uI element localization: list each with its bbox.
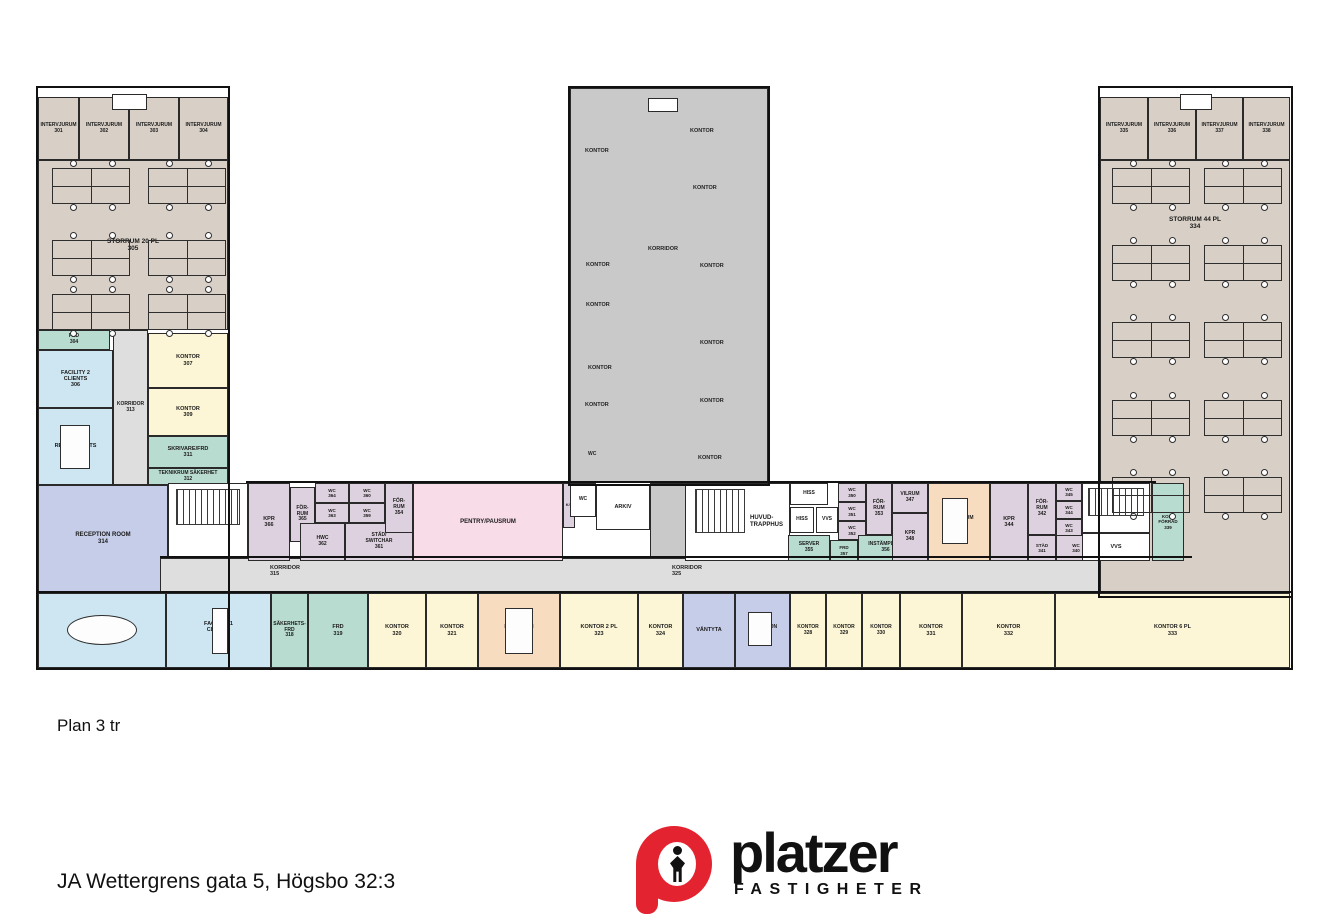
label-tower-kontor-5: KONTOR	[586, 302, 610, 308]
chair-icon	[1261, 358, 1268, 365]
room-sakerhets-frd-318-label: SÄKERHETS- FRD 318	[273, 622, 306, 639]
label-tower-kontor-4: KONTOR	[586, 262, 610, 268]
platzer-logo: platzer FASTIGHETER	[630, 826, 929, 914]
room-intervjurum-301-label: INTERVJURUM 301	[40, 123, 76, 135]
room-wc-344-label: WC 344	[1065, 505, 1073, 515]
room-intervjurum-304-label: INTERVJURUM 304	[185, 123, 221, 135]
chair-icon	[1130, 204, 1137, 211]
room-vvs-mid: VVS	[816, 507, 838, 533]
label-tower-kontor-11: KONTOR	[698, 455, 722, 461]
chair-icon	[1261, 281, 1268, 288]
room-wc-360: WC 360	[349, 483, 385, 503]
chair-icon	[109, 276, 116, 283]
room-korridor-313: KORRIDOR 313	[113, 330, 148, 485]
room-kontor-307-label: KONTOR 307	[176, 354, 200, 367]
room-wc-350-label: WC 350	[848, 487, 856, 497]
chair-icon	[1169, 204, 1176, 211]
chair-icon	[1169, 160, 1176, 167]
chair-icon	[109, 232, 116, 239]
chair-icon	[1261, 204, 1268, 211]
room-wc-343-label: WC 343	[1065, 523, 1073, 533]
label-tower-kontor-10: KONTOR	[700, 398, 724, 404]
room-kontor-6pl-333: KONTOR 6 PL 333	[1055, 593, 1290, 668]
room-for-rum-342-label: FÖR- RUM 342	[1036, 500, 1048, 517]
meeting-table	[212, 608, 228, 654]
chair-icon	[1261, 237, 1268, 244]
room-frd-357-label: FRD 357	[839, 545, 848, 555]
label-tower-korridor: KORRIDOR	[648, 246, 678, 252]
room-frd-357: FRD 357	[830, 540, 858, 561]
chair-icon	[205, 160, 212, 167]
chair-icon	[70, 160, 77, 167]
chair-icon	[1222, 469, 1229, 476]
room-stad-341: STÄD 341	[1028, 535, 1056, 561]
room-arkiv-label: ARKIV	[614, 504, 631, 510]
room-kpr-366: KPR 366	[248, 483, 290, 561]
room-wc-tower: WC	[570, 483, 596, 517]
desk-cluster	[1204, 168, 1282, 204]
room-kontor-6pl-333-label: KONTOR 6 PL 333	[1154, 624, 1191, 637]
desk-cluster	[1112, 322, 1190, 358]
chair-icon	[166, 160, 173, 167]
chair-icon	[1130, 436, 1137, 443]
room-kontor-330: KONTOR 330	[862, 593, 900, 668]
logo-person-head-icon	[673, 846, 682, 855]
room-kontor-330-label: KONTOR 330	[870, 625, 892, 637]
room-tower-hatched-wedge	[650, 483, 688, 559]
room-for-rum-353-label: FÖR- RUM 353	[873, 500, 885, 517]
desk-cluster	[148, 294, 226, 330]
room-wc-352-label: WC 352	[848, 525, 856, 535]
desk-cluster	[52, 240, 130, 276]
chair-icon	[1169, 314, 1176, 321]
room-facility-2-clients-306: FACILITY 2 CLIENTS 306	[38, 350, 113, 408]
desk-cluster	[1112, 168, 1190, 204]
room-wc-351-label: WC 351	[848, 506, 856, 516]
room-wc-tower-label: WC	[579, 497, 587, 503]
room-kontor-2pl-323: KONTOR 2 PL 323	[560, 593, 638, 668]
chair-icon	[205, 330, 212, 337]
room-sakerhets-frd-318: SÄKERHETS- FRD 318	[271, 593, 308, 668]
plan-level-label: Plan 3 tr	[57, 716, 120, 736]
logo-p-descender	[636, 864, 658, 914]
chair-icon	[1169, 392, 1176, 399]
room-intervjurum-335: INTERVJURUM 335	[1100, 97, 1148, 160]
room-for-rum-353: FÖR- RUM 353	[866, 483, 892, 535]
desk-cluster	[1204, 400, 1282, 436]
logo-wordmark: platzer FASTIGHETER	[730, 826, 929, 899]
room-kontor-320: KONTOR 320	[368, 593, 426, 668]
chair-icon	[1130, 237, 1137, 244]
chair-icon	[1222, 513, 1229, 520]
room-hiss-2-label: HISS	[796, 517, 808, 523]
chair-icon	[205, 204, 212, 211]
room-kpr-344-label: KPR 344	[1003, 516, 1015, 529]
label-tower-kontor-1: KONTOR	[585, 148, 609, 154]
chair-icon	[1261, 314, 1268, 321]
desk-cluster	[1204, 477, 1282, 513]
room-intervjurum-336-label: INTERVJURUM 336	[1154, 123, 1190, 135]
chair-icon	[109, 160, 116, 167]
chair-icon	[70, 232, 77, 239]
room-frd-319: FRD 319	[308, 593, 368, 668]
chair-icon	[205, 286, 212, 293]
chair-icon	[70, 330, 77, 337]
room-hwc-362-label: HWC 362	[317, 536, 329, 548]
chair-icon	[109, 204, 116, 211]
room-hiss-1: HISS	[790, 483, 828, 505]
room-for-rum-354-label: FÖR- RUM 354	[393, 499, 405, 516]
room-stad-341-label: STÄD 341	[1036, 543, 1048, 553]
room-wc-363-label: WC 363	[328, 508, 336, 518]
room-kontor-331-label: KONTOR 331	[919, 624, 943, 637]
chair-icon	[1169, 436, 1176, 443]
desk-cluster	[1204, 322, 1282, 358]
chair-icon	[1169, 469, 1176, 476]
room-storrum-334-label: STORRUM 44 PL 334	[1169, 216, 1221, 231]
chair-icon	[109, 286, 116, 293]
room-vilrum-347-label: VILRUM 347	[900, 492, 919, 504]
chair-icon	[1130, 281, 1137, 288]
room-kontor-321: KONTOR 321	[426, 593, 478, 668]
room-intervjurum-303-label: INTERVJURUM 303	[136, 123, 172, 135]
chair-icon	[109, 330, 116, 337]
room-kpr-366-label: KPR 366	[263, 516, 275, 529]
room-intervjurum-301: INTERVJURUM 301	[38, 97, 79, 160]
room-kontor-2pl-323-label: KONTOR 2 PL 323	[581, 624, 618, 637]
room-kpr-348: KPR 348	[892, 513, 928, 561]
room-for-rum-365-label: FÖR- RUM 365	[296, 506, 308, 523]
chair-icon	[1130, 160, 1137, 167]
meeting-table	[505, 608, 533, 654]
room-intervjurum-337-label: INTERVJURUM 337	[1201, 123, 1237, 135]
room-wc-350: WC 350	[838, 483, 866, 502]
room-kontor-324-label: KONTOR 324	[649, 624, 673, 637]
room-vvs-mid-label: VVS	[822, 517, 832, 523]
room-wc-359-label: WC 359	[363, 508, 371, 518]
room-reception-room-314: RECEPTION ROOM 314	[38, 485, 168, 593]
chair-icon	[1261, 436, 1268, 443]
room-kontor-309: KONTOR 309	[148, 388, 228, 436]
room-pentry-pausrum-label: PENTRY/PAUSRUM	[460, 519, 516, 526]
room-vantyta: VÄNTYTA	[683, 593, 735, 668]
chair-icon	[1130, 392, 1137, 399]
room-intervjurum-338-label: INTERVJURUM 338	[1248, 123, 1284, 135]
room-for-rum-354: FÖR- RUM 354	[385, 483, 413, 533]
room-vvs-east: VVS	[1082, 533, 1150, 561]
room-kpr-344: KPR 344	[990, 483, 1028, 561]
room-wc-364-label: WC 364	[328, 488, 336, 498]
room-server-355: SERVER 355	[788, 535, 830, 561]
desk-cluster	[1204, 245, 1282, 281]
room-wc-345: WC 345	[1056, 483, 1082, 501]
label-tower-kontor-8: KONTOR	[585, 402, 609, 408]
stairs-icon	[695, 489, 745, 533]
room-kontor-324: KONTOR 324	[638, 593, 683, 668]
chair-icon	[166, 330, 173, 337]
chair-icon	[70, 276, 77, 283]
room-wc-359: WC 359	[349, 503, 385, 523]
room-wc-345-label: WC 345	[1065, 487, 1073, 497]
chair-icon	[1261, 513, 1268, 520]
chair-icon	[1261, 392, 1268, 399]
label-korridor-325: KORRIDOR 325	[672, 565, 702, 578]
room-intervjurum-304: INTERVJURUM 304	[179, 97, 228, 160]
room-vilrum-347: VILRUM 347	[892, 483, 928, 513]
label-tower-wc: WC	[588, 452, 596, 458]
room-stad-switchar-361-label: STÄD/ SWITCHAR 361	[366, 533, 393, 550]
chair-icon	[1169, 513, 1176, 520]
property-address: JA Wettergrens gata 5, Högsbo 32:3	[57, 870, 395, 894]
room-kontor-329-label: KONTOR 329	[833, 625, 855, 637]
room-kontor-321-label: KONTOR 321	[440, 624, 464, 637]
meeting-table	[60, 425, 90, 469]
room-wc-363: WC 363	[315, 503, 349, 523]
room-pentry-pausrum: PENTRY/PAUSRUM	[413, 483, 563, 561]
room-intervjurum-338: INTERVJURUM 338	[1243, 97, 1290, 160]
chair-icon	[1222, 314, 1229, 321]
chair-icon	[1130, 469, 1137, 476]
roof-hatch-tower	[648, 98, 678, 112]
chair-icon	[1222, 237, 1229, 244]
room-skrivare-frd-311-label: SKRIVARE/FRD 311	[168, 446, 209, 459]
platzer-logo-icon	[630, 826, 716, 914]
chair-icon	[70, 286, 77, 293]
chair-icon	[1222, 392, 1229, 399]
floorplan-page: STORRUM 20 PL 305INTERVJURUM 301INTERVJU…	[0, 0, 1334, 918]
chair-icon	[1222, 160, 1229, 167]
room-kontor-309-label: KONTOR 309	[176, 406, 200, 419]
label-tower-kontor-6: KONTOR	[700, 263, 724, 269]
chair-icon	[1222, 204, 1229, 211]
desk-cluster	[1112, 245, 1190, 281]
room-arkiv: ARKIV	[596, 485, 650, 530]
room-kpr-348-label: KPR 348	[905, 531, 916, 543]
chair-icon	[1261, 469, 1268, 476]
room-wc-340-label: WC 340	[1072, 543, 1080, 553]
room-kontor-332-label: KONTOR 332	[997, 624, 1021, 637]
stairs-icon	[176, 489, 240, 525]
label-korridor-315: KORRIDOR 315	[270, 565, 300, 578]
room-skrivare-frd-311: SKRIVARE/FRD 311	[148, 436, 228, 468]
room-kontor-332: KONTOR 332	[962, 593, 1055, 668]
room-wc-360-label: WC 360	[363, 488, 371, 498]
roof-hatch-right	[1180, 94, 1212, 110]
chair-icon	[1222, 358, 1229, 365]
room-hiss-1-label: HISS	[803, 491, 815, 497]
room-teknikrum-sakerhet-312-label: TEKNIKRUM SÄKERHET 312	[159, 471, 218, 483]
room-server-355-label: SERVER 355	[799, 542, 819, 554]
room-frd-319-label: FRD 319	[332, 624, 343, 637]
chair-icon	[205, 232, 212, 239]
meeting-table	[942, 498, 968, 544]
chair-icon	[166, 286, 173, 293]
room-vvs-east-label: VVS	[1110, 544, 1121, 550]
room-intervjurum-302-label: INTERVJURUM 302	[86, 123, 122, 135]
chair-icon	[1130, 314, 1137, 321]
room-for-rum-342: FÖR- RUM 342	[1028, 483, 1056, 535]
label-tower-kontor-7: KONTOR	[588, 365, 612, 371]
room-wc-364: WC 364	[315, 483, 349, 503]
room-korridor-313-label: KORRIDOR 313	[117, 402, 144, 414]
roof-hatch-left	[112, 94, 147, 110]
logo-sub-text: FASTIGHETER	[730, 881, 929, 899]
room-hwc-362: HWC 362	[300, 523, 345, 561]
chair-icon	[1169, 281, 1176, 288]
oval-meeting-table	[67, 615, 137, 645]
desk-cluster	[52, 294, 130, 330]
room-kontor-328: KONTOR 328	[790, 593, 826, 668]
room-kontor-329: KONTOR 329	[826, 593, 862, 668]
room-kontor-331: KONTOR 331	[900, 593, 962, 668]
logo-brand-text: platzer	[730, 826, 929, 879]
label-tower-kontor-9: KONTOR	[700, 340, 724, 346]
room-intervjurum-335-label: INTERVJURUM 335	[1106, 123, 1142, 135]
room-facility-2-clients-306-label: FACILITY 2 CLIENTS 306	[61, 370, 90, 389]
room-wc-344: WC 344	[1056, 501, 1082, 519]
chair-icon	[205, 276, 212, 283]
chair-icon	[1222, 281, 1229, 288]
desk-cluster	[1112, 400, 1190, 436]
room-huvudtrapphus-label: HUVUD- TRAPPHUS	[750, 515, 783, 529]
chair-icon	[1130, 358, 1137, 365]
desk-cluster	[148, 240, 226, 276]
label-tower-kontor-2: KONTOR	[690, 128, 714, 134]
room-hiss-2: HISS	[790, 507, 814, 533]
chair-icon	[1169, 237, 1176, 244]
stairs-icon	[1088, 488, 1144, 516]
chair-icon	[166, 204, 173, 211]
floorplan-drawing: STORRUM 20 PL 305INTERVJURUM 301INTERVJU…	[0, 0, 1334, 770]
chair-icon	[166, 276, 173, 283]
meeting-table	[748, 612, 772, 646]
room-wc-351: WC 351	[838, 502, 866, 521]
chair-icon	[1261, 160, 1268, 167]
label-tower-kontor-3: KONTOR	[693, 185, 717, 191]
room-vantyta-label: VÄNTYTA	[696, 627, 722, 633]
chair-icon	[1169, 358, 1176, 365]
room-kontor-307: KONTOR 307	[148, 333, 228, 388]
chair-icon	[70, 204, 77, 211]
room-reception-room-314-label: RECEPTION ROOM 314	[75, 532, 130, 546]
desk-cluster	[148, 168, 226, 204]
chair-icon	[1222, 436, 1229, 443]
room-kontor-328-label: KONTOR 328	[797, 625, 819, 637]
desk-cluster	[52, 168, 130, 204]
room-kontor-320-label: KONTOR 320	[385, 624, 409, 637]
chair-icon	[166, 232, 173, 239]
